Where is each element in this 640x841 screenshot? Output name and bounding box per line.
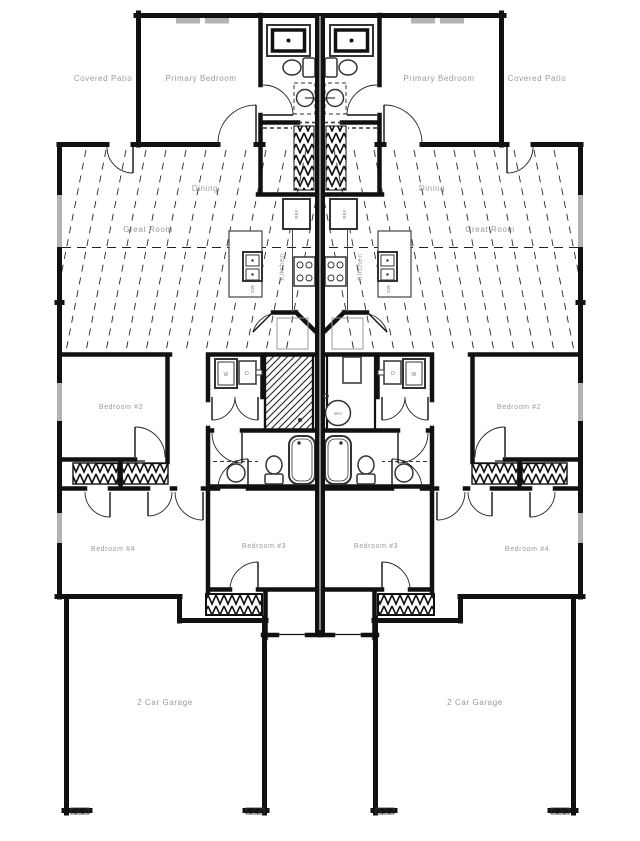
label-covered-patio-right: Covered Patio [508, 74, 567, 83]
label-primary-bedroom-left: Primary Bedroom [165, 74, 236, 83]
label-dw-right: DW [386, 285, 391, 293]
label-bedroom3-left: Bedroom #3 [242, 543, 286, 550]
label-kitchen-left: Kitchen [279, 253, 286, 281]
label-bedroom2-left: Bedroom #2 [99, 404, 143, 411]
label-bedroom2-right: Bedroom #2 [497, 404, 541, 411]
label-washer-right: W [412, 372, 417, 378]
label-ref-left: REF [294, 209, 299, 219]
floor-plan-page: Covered Patio Covered Patio Primary Bedr… [0, 0, 640, 841]
label-kitchen-right: Kitchen [357, 253, 364, 281]
label-dryer-right: D [391, 371, 395, 377]
label-dryer-left: D [245, 371, 249, 377]
label-bedroom4-right: Bedroom #4 [505, 546, 549, 553]
label-ref-right: REF [342, 209, 347, 219]
label-garage-right: 2 Car Garage [447, 698, 503, 707]
label-dw-left: DW [250, 285, 255, 293]
party-wall [315, 13, 325, 633]
label-great-room-left: Great Room [123, 225, 173, 234]
label-bedroom4-left: Bedroom #4 [91, 546, 135, 553]
label-dining-left: Dining [192, 184, 218, 193]
label-water-heater: WH [334, 411, 342, 416]
label-garage-left: 2 Car Garage [137, 698, 193, 707]
label-primary-bedroom-right: Primary Bedroom [403, 74, 474, 83]
label-washer-left: W [224, 372, 229, 378]
label-great-room-right: Great Room [465, 225, 515, 234]
label-dining-right: Dining [419, 184, 445, 193]
label-bedroom3-right: Bedroom #3 [354, 543, 398, 550]
floor-plan-drawing: Covered Patio Covered Patio Primary Bedr… [0, 0, 640, 841]
label-covered-patio-left: Covered Patio [74, 74, 133, 83]
hatched-chase [265, 355, 313, 430]
